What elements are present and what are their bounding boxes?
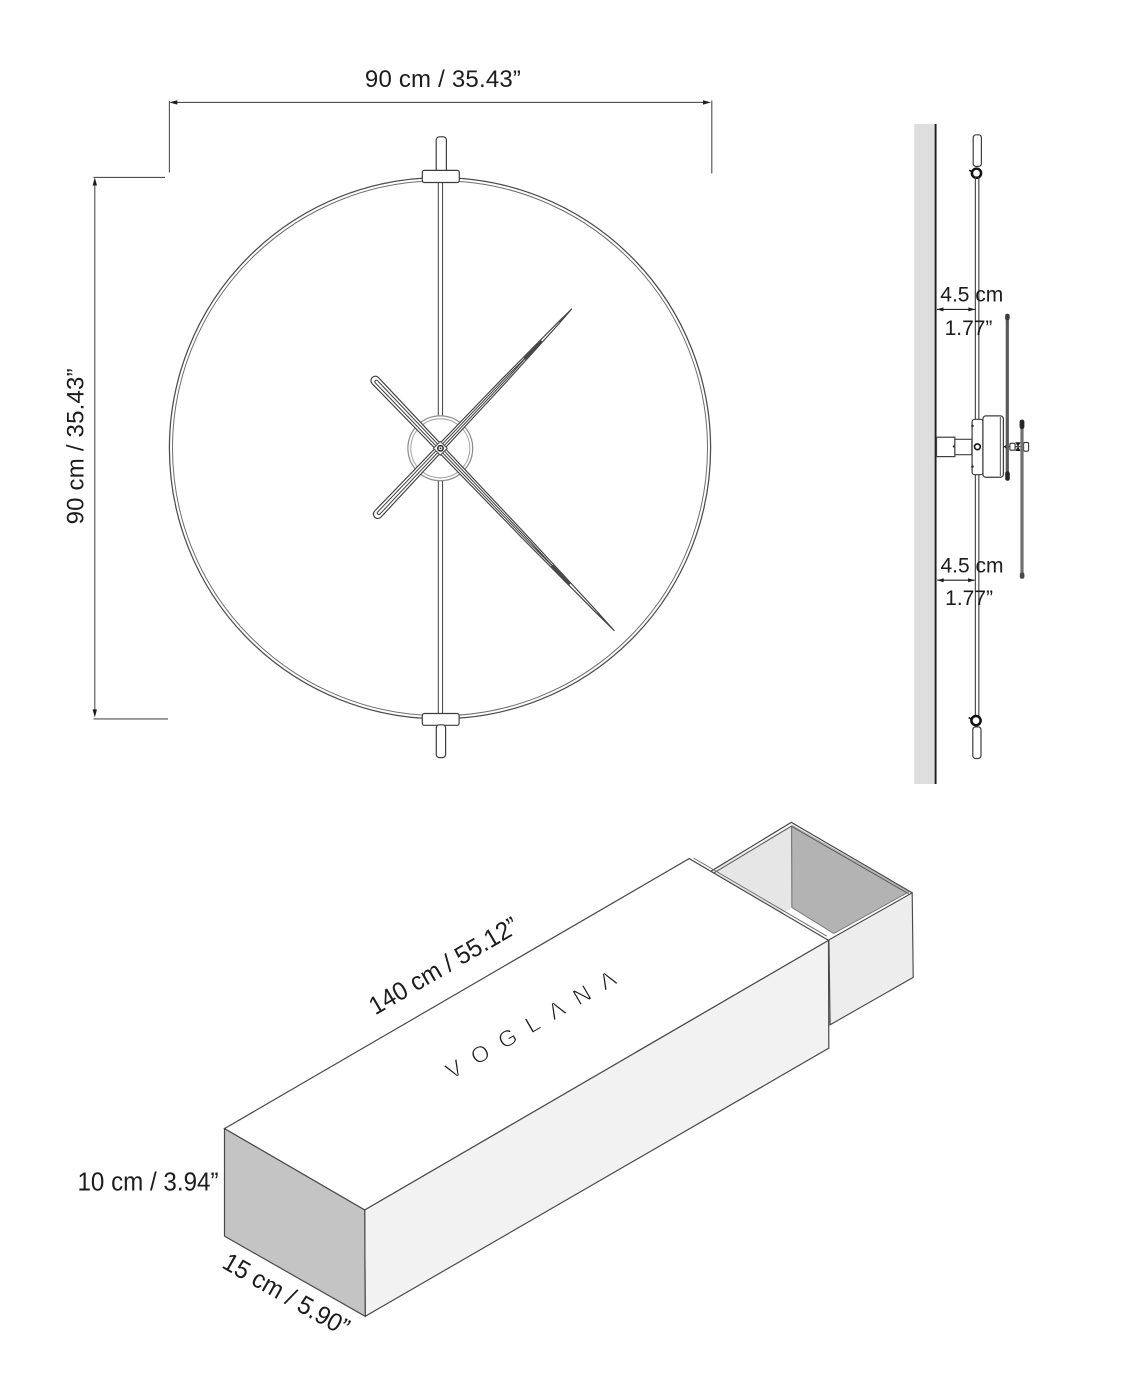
svg-text:4.5 cm: 4.5 cm: [940, 284, 1003, 307]
svg-text:4.5 cm: 4.5 cm: [940, 555, 1003, 578]
svg-text:90 cm / 35.43”: 90 cm / 35.43”: [63, 368, 90, 524]
svg-text:90 cm / 35.43”: 90 cm / 35.43”: [365, 66, 521, 93]
svg-text:1.77”: 1.77”: [945, 317, 993, 340]
svg-text:10 cm / 3.94”: 10 cm / 3.94”: [78, 1169, 219, 1197]
svg-text:1.77”: 1.77”: [945, 587, 993, 610]
